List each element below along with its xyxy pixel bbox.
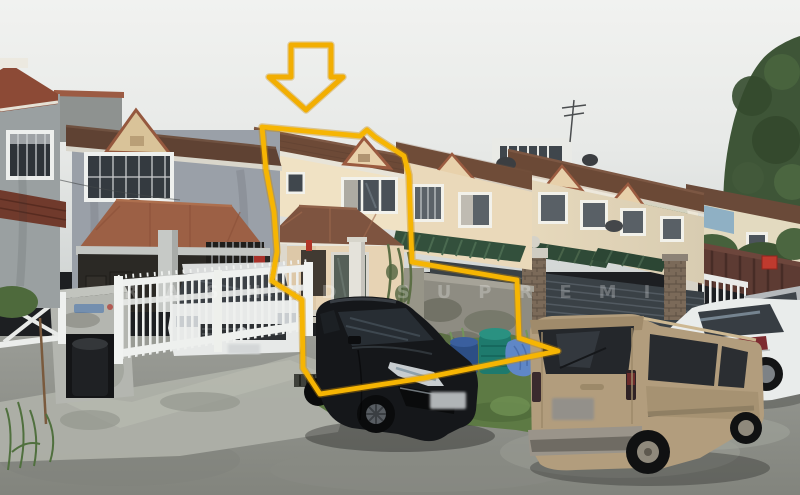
van-license-plate [552, 398, 594, 420]
fire-extinguisher [306, 240, 312, 251]
listing-photo: RASHID SUPREMI [0, 0, 800, 495]
upper-window-small [286, 172, 305, 194]
satellite-dish [582, 154, 598, 166]
red-signboard [762, 256, 777, 269]
side-mirror [348, 336, 361, 344]
photo-canvas: RASHID SUPREMI [0, 0, 800, 495]
satellite-dish [605, 220, 623, 232]
house-far-left [0, 58, 66, 318]
grilled-window [6, 130, 54, 180]
grilled-window [84, 152, 174, 202]
gold-van [528, 314, 770, 486]
car-license-plate [430, 392, 466, 409]
photo-watermark: RASHID SUPREMI [124, 282, 677, 303]
